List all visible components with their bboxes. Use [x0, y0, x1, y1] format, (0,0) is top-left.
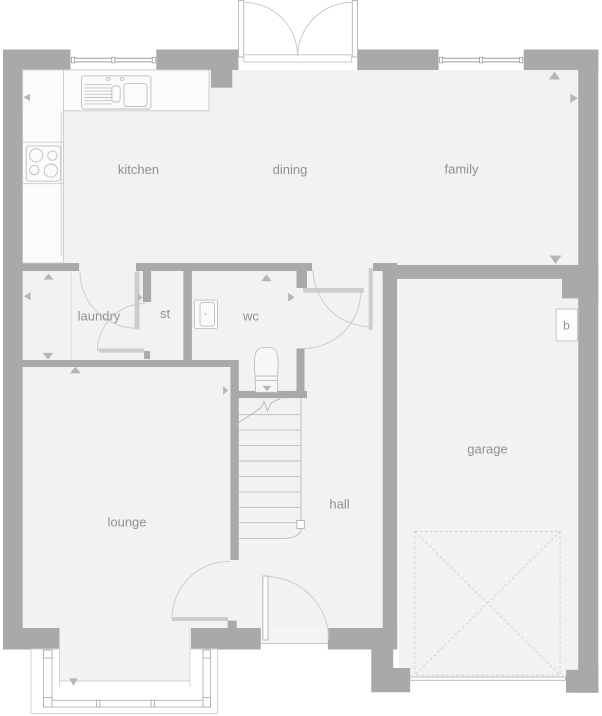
- svg-text:st: st: [160, 306, 171, 321]
- svg-text:lounge: lounge: [107, 514, 146, 529]
- svg-text:garage: garage: [467, 442, 507, 457]
- svg-text:family: family: [445, 162, 479, 177]
- svg-text:dining: dining: [273, 162, 308, 177]
- svg-text:hall: hall: [329, 497, 349, 512]
- svg-text:kitchen: kitchen: [118, 162, 159, 177]
- svg-text:wc: wc: [242, 309, 259, 324]
- svg-text:b: b: [563, 319, 570, 333]
- svg-text:laundry: laundry: [78, 308, 121, 323]
